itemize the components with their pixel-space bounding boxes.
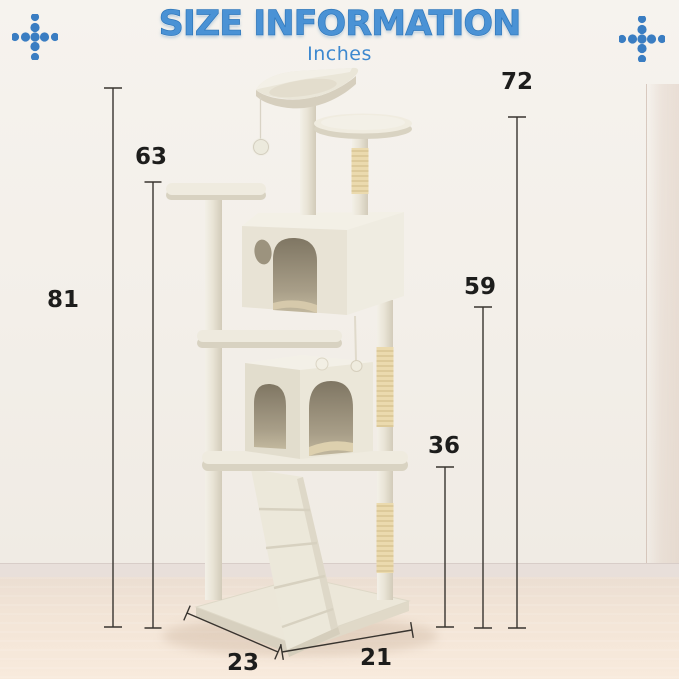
hanging-ball-toy xyxy=(252,97,270,156)
cat-tree-large-condo xyxy=(242,212,404,315)
measurement-36: 36 xyxy=(428,433,460,459)
size-information-infographic: SIZE INFORMATION Inches xyxy=(0,0,679,679)
measurement-81: 81 xyxy=(47,287,79,313)
dimension-line-59 xyxy=(474,307,492,628)
dimension-line-72 xyxy=(508,117,526,628)
cat-tree-illustration xyxy=(0,0,679,679)
measurement-21: 21 xyxy=(360,645,392,671)
measurement-23: 23 xyxy=(227,650,259,676)
cat-tree-round-platform xyxy=(314,114,412,140)
dimension-line-36 xyxy=(436,467,454,627)
cat-tree-middle-shelf xyxy=(197,330,342,348)
measurement-59: 59 xyxy=(464,274,496,300)
dimension-line-81 xyxy=(104,88,122,627)
dimension-line-63 xyxy=(145,182,162,628)
cat-tree-top-perch xyxy=(256,68,358,109)
measurement-63: 63 xyxy=(135,144,167,170)
cat-tree-left-platform xyxy=(166,183,266,200)
measurement-72: 72 xyxy=(501,69,533,95)
cat-tree-upper-posts xyxy=(300,93,369,215)
